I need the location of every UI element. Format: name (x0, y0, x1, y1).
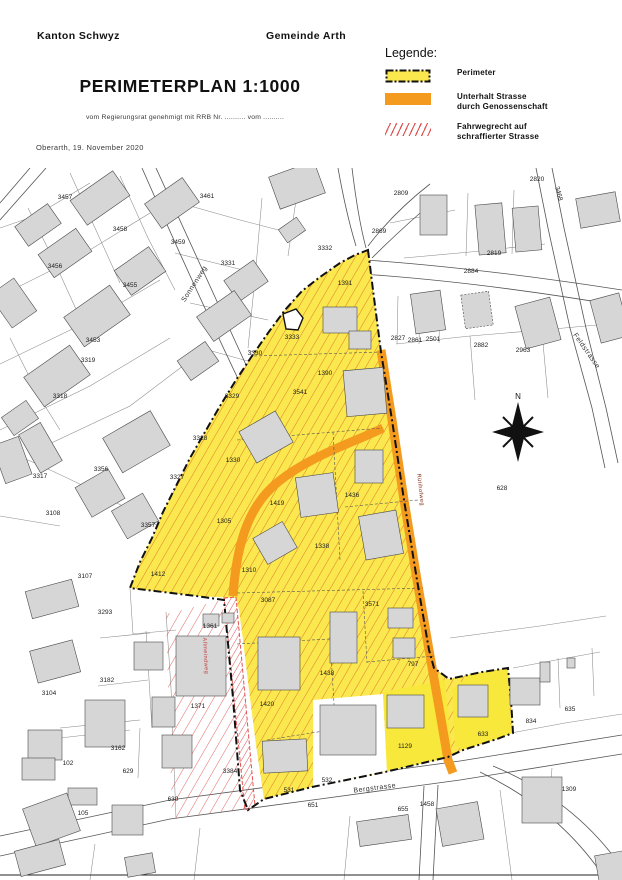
parcel-label-3541: 3541 (293, 389, 308, 396)
building (343, 367, 387, 416)
perimeter-swatch (385, 69, 431, 83)
parcel-boundary (344, 816, 350, 880)
parcel-label-3330: 3330 (248, 350, 263, 357)
perimeterplan-page: Kanton Schwyz Gemeinde Arth PERIMETERPLA… (0, 0, 622, 880)
road-edge (0, 168, 30, 203)
parcel-label-3328: 3328 (193, 435, 208, 442)
building (410, 290, 445, 334)
parcel-label-3087: 3087 (261, 597, 276, 604)
parcel-label-3162: 3162 (111, 745, 126, 752)
parcel-label-3333: 3333 (285, 334, 300, 341)
building (176, 636, 226, 696)
building (30, 640, 81, 683)
parcel-label-3453: 3453 (86, 337, 101, 344)
parcel-label-102: 102 (63, 760, 74, 767)
parcel-label-1305: 1305 (217, 518, 232, 525)
parcel-label-2827: 2827 (391, 335, 406, 342)
parcel-label-2884: 2884 (464, 268, 479, 275)
building (388, 608, 413, 628)
building (475, 203, 506, 255)
building (222, 613, 234, 623)
building (540, 662, 550, 682)
building (355, 450, 383, 483)
building (357, 814, 412, 846)
building (112, 805, 143, 835)
parcel-label-3357: 3357 (141, 522, 156, 529)
parcel-label-3318: 3318 (53, 393, 68, 400)
building (177, 341, 219, 380)
building (262, 739, 308, 773)
building (278, 217, 305, 243)
legend: Legende: Perimeter Unterhalt Strassedurc… (385, 46, 615, 152)
legend-item-perimeter: Perimeter (385, 68, 615, 83)
legend-title: Legende: (385, 46, 615, 60)
building (103, 411, 171, 473)
building (323, 307, 357, 333)
building (387, 695, 424, 728)
parcel-label-3468: 3468 (553, 186, 564, 202)
building (85, 700, 125, 747)
parcel-label-2819: 2819 (487, 250, 502, 257)
parcel-label-635: 635 (565, 706, 576, 713)
parcel-boundary (592, 648, 594, 696)
parcel-label-2501: 2501 (426, 336, 441, 343)
street-label-sonnenweg: Sonnenweg (181, 265, 209, 304)
parcel-boundary (513, 652, 600, 668)
parcel-label-3457: 3457 (58, 194, 73, 201)
parcel-label-797: 797 (408, 661, 419, 668)
building (295, 473, 338, 518)
parcel-label-1338: 1338 (315, 543, 330, 550)
parcel-label-1330: 1330 (226, 457, 241, 464)
parcel-label-633: 633 (478, 731, 489, 738)
building (320, 705, 376, 755)
building (38, 228, 92, 277)
parcel-boundary (466, 193, 468, 256)
building (436, 802, 484, 847)
building (349, 331, 371, 349)
parcel-label-3108: 3108 (46, 510, 61, 517)
plan-title: PERIMETERPLAN 1:1000 (75, 76, 305, 97)
parcel-label-3327: 3327 (170, 474, 185, 481)
parcel-label-1129: 1129 (398, 743, 412, 750)
parcel-label-1436: 1436 (345, 492, 360, 499)
parcel-label-630: 630 (168, 796, 179, 803)
building (515, 297, 561, 349)
building (458, 685, 488, 717)
place-date: Oberarth, 19. November 2020 (36, 143, 144, 152)
orange-road-swatch (385, 93, 431, 105)
parcel-label-105: 105 (78, 810, 89, 817)
building (393, 638, 415, 658)
parcel-label-3456: 3456 (48, 263, 63, 270)
road-edge (362, 274, 622, 306)
parcel-label-3356: 3356 (94, 466, 109, 473)
building (0, 278, 37, 328)
parcel-label-531: 531 (284, 787, 295, 794)
parcel-label-3182: 3182 (100, 677, 115, 684)
parcel-label-3104: 3104 (42, 690, 57, 697)
parcel-label-1310: 1310 (242, 567, 257, 574)
parcel-label-3107: 3107 (78, 573, 93, 580)
parcel-label-3331: 3331 (221, 260, 236, 267)
parcel-label-3317: 3317 (33, 473, 48, 480)
building (145, 178, 200, 229)
building (22, 758, 55, 780)
street-label-bergstrasse: Bergstrasse (353, 782, 396, 794)
parcel-label-1309: 1309 (562, 786, 577, 793)
building (595, 851, 622, 880)
parcel-label-2869: 2869 (372, 228, 387, 235)
building (420, 195, 447, 235)
building (25, 579, 79, 618)
parcel-boundary (500, 790, 512, 880)
parcel-label-3329: 3329 (225, 393, 240, 400)
parcel-label-2963: 2963 (516, 347, 531, 354)
parcel-label-3458: 3458 (113, 226, 128, 233)
parcel-label-3571: 3571 (365, 601, 380, 608)
parcel-label-834: 834 (526, 718, 537, 725)
legend-item-orange-road: Unterhalt Strassedurch Genossenschaft (385, 92, 615, 113)
building (567, 658, 575, 668)
parcel-boundary (100, 633, 150, 638)
parcel-label-2861: 2861 (408, 337, 423, 344)
building (358, 510, 403, 560)
parcel-label-1391: 1391 (338, 280, 353, 287)
compass-north-label: N (515, 392, 521, 401)
parcel-label-1458: 1458 (420, 801, 435, 808)
parcel-label-1361: 1361 (203, 623, 218, 630)
building (461, 291, 493, 329)
building (28, 730, 62, 760)
building (134, 642, 163, 670)
parcel-label-1420: 1420 (260, 701, 275, 708)
building (124, 853, 155, 878)
legend-label: Fahrwegrecht aufschraffierter Strasse (457, 122, 539, 143)
building (152, 697, 175, 727)
parcel-label-3461: 3461 (200, 193, 215, 200)
building (330, 612, 357, 663)
parcel-label-655: 655 (398, 806, 409, 813)
building (576, 192, 621, 228)
building (510, 678, 540, 705)
building (522, 777, 562, 823)
municipality-label: Gemeinde Arth (266, 30, 346, 42)
parcel-label-2820: 2820 (530, 176, 545, 183)
parcel-boundary (0, 516, 60, 526)
parcel-boundary (138, 728, 140, 778)
parcel-label-3319: 3319 (81, 357, 96, 364)
approval-note: vom Regierungsrat genehmigt mit RRB Nr. … (55, 114, 315, 121)
cadastral-map: N 34573461345834593456333134553453331933… (0, 168, 622, 880)
parcel-label-629: 629 (123, 768, 134, 775)
parcel-label-2809: 2809 (394, 190, 409, 197)
street-label-feldstrasse: Feldstrasse (571, 332, 601, 370)
building (15, 204, 62, 247)
building (68, 788, 97, 805)
parcel-label-1412: 1412 (151, 571, 166, 578)
building (162, 735, 192, 768)
parcel-label-3332: 3332 (318, 245, 333, 252)
road-edge (352, 168, 366, 248)
building (14, 839, 65, 876)
road-edge (433, 785, 438, 880)
building (258, 637, 300, 690)
building (590, 293, 622, 343)
canton-label: Kanton Schwyz (37, 30, 120, 42)
parcel-label-2882: 2882 (474, 342, 489, 349)
parcel-label-3459: 3459 (171, 239, 186, 246)
legend-label: Perimeter (457, 68, 496, 78)
parcel-label-3455: 3455 (123, 282, 138, 289)
parcel-label-3293: 3293 (98, 609, 113, 616)
parcel-label-1371: 1371 (191, 703, 206, 710)
building (512, 206, 542, 252)
street-label-rütihofweg: Rütihofweg (415, 473, 424, 506)
building (269, 168, 326, 209)
building (70, 171, 130, 225)
road-edge (366, 260, 622, 290)
parcel-label-628: 628 (497, 485, 508, 492)
compass-rose: N (492, 392, 544, 462)
parcel-label-1390: 1390 (318, 370, 333, 377)
parcel-label-651: 651 (308, 802, 319, 809)
legend-item-red-hatch: Fahrwegrecht aufschraffierter Strasse (385, 122, 615, 143)
parcel-label-532: 532 (322, 777, 333, 784)
parcel-boundary (194, 828, 200, 880)
legend-label: Unterhalt Strassedurch Genossenschaft (457, 92, 548, 113)
parcel-boundary (450, 616, 606, 638)
parcel-boundary (558, 658, 560, 708)
parcel-label-3384: 3384 (223, 768, 238, 775)
red-hatch-swatch (385, 123, 431, 136)
parcel-label-1438: 1438 (320, 670, 335, 677)
parcel-label-1419: 1419 (270, 500, 285, 507)
